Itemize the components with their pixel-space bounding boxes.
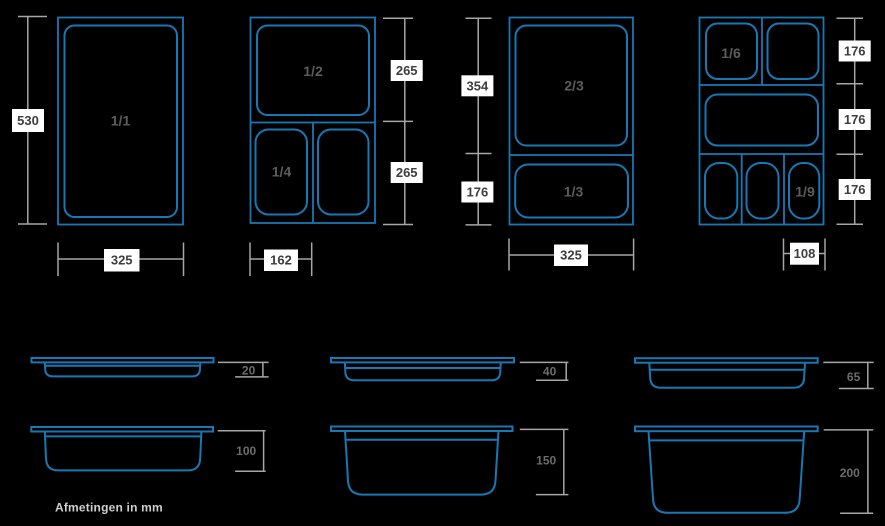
svg-text:265: 265: [396, 63, 418, 78]
svg-text:176: 176: [844, 44, 866, 59]
svg-text:354: 354: [467, 78, 489, 93]
svg-text:1/9: 1/9: [795, 184, 815, 200]
svg-text:1/4: 1/4: [272, 164, 292, 180]
svg-text:176: 176: [844, 182, 866, 197]
svg-text:265: 265: [396, 165, 418, 180]
svg-text:176: 176: [844, 112, 866, 127]
svg-text:1/1: 1/1: [111, 113, 131, 129]
svg-text:162: 162: [270, 253, 292, 268]
svg-text:108: 108: [794, 246, 816, 261]
svg-text:1/6: 1/6: [721, 45, 741, 61]
svg-text:65: 65: [847, 370, 861, 384]
svg-text:325: 325: [111, 253, 133, 268]
svg-text:100: 100: [236, 444, 256, 458]
svg-text:1/3: 1/3: [564, 184, 584, 200]
svg-text:176: 176: [467, 185, 489, 200]
svg-text:1/2: 1/2: [303, 63, 323, 79]
svg-text:530: 530: [17, 113, 39, 128]
svg-text:150: 150: [536, 454, 556, 468]
svg-text:20: 20: [242, 363, 256, 377]
svg-text:Afmetingen in mm: Afmetingen in mm: [55, 501, 163, 515]
svg-text:2/3: 2/3: [564, 78, 584, 94]
svg-text:325: 325: [560, 248, 582, 263]
svg-text:40: 40: [543, 365, 557, 379]
svg-text:200: 200: [840, 466, 860, 480]
